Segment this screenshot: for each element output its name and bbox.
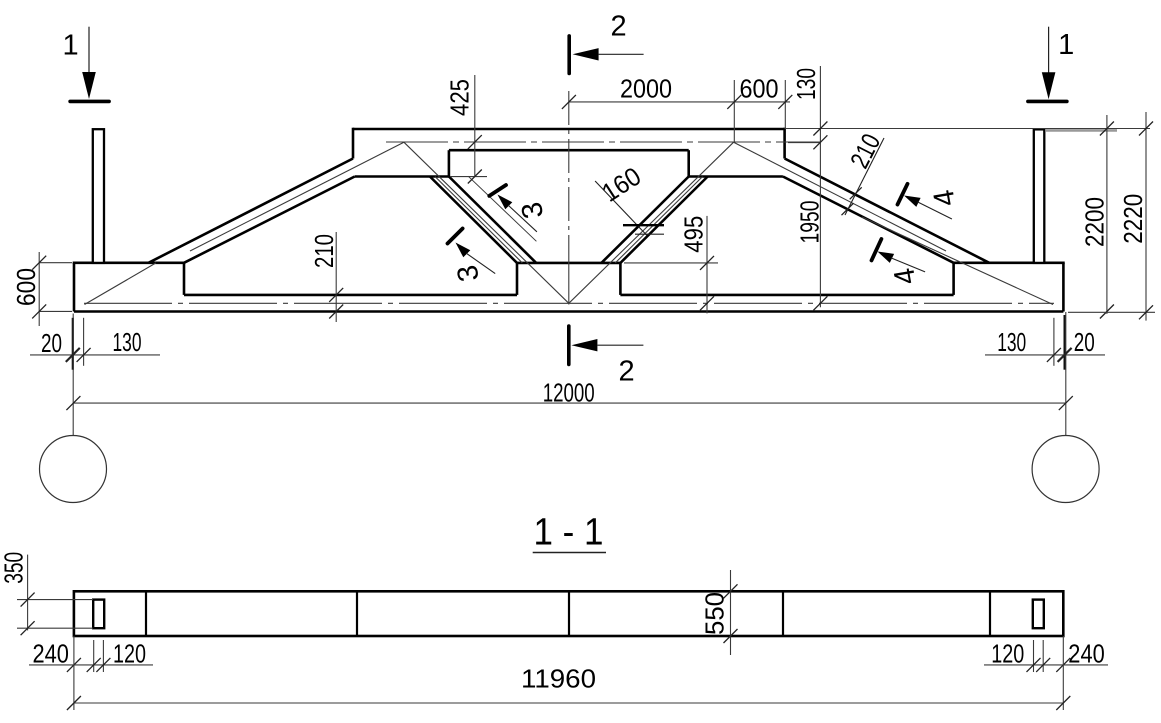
svg-text:550: 550	[699, 592, 729, 635]
svg-text:130: 130	[791, 68, 821, 100]
svg-text:2: 2	[618, 355, 634, 387]
svg-text:495: 495	[678, 216, 708, 253]
svg-text:600: 600	[11, 268, 41, 306]
svg-text:1: 1	[1058, 29, 1074, 61]
svg-text:12000: 12000	[543, 377, 595, 407]
svg-text:2000: 2000	[620, 73, 672, 103]
svg-text:120: 120	[991, 639, 1024, 669]
svg-text:2200: 2200	[1080, 197, 1110, 247]
svg-text:120: 120	[113, 639, 146, 669]
svg-text:2: 2	[610, 10, 626, 42]
svg-text:600: 600	[740, 73, 779, 103]
svg-text:20: 20	[1074, 327, 1095, 357]
svg-text:20: 20	[41, 328, 62, 358]
svg-text:350: 350	[0, 552, 28, 584]
svg-text:1: 1	[62, 29, 78, 61]
svg-text:130: 130	[997, 327, 1026, 357]
svg-text:1950: 1950	[795, 201, 825, 244]
svg-text:2220: 2220	[1118, 194, 1148, 244]
svg-text:425: 425	[444, 79, 474, 116]
svg-text:130: 130	[113, 327, 142, 357]
svg-text:240: 240	[1068, 639, 1104, 669]
svg-text:11960: 11960	[521, 663, 596, 693]
svg-text:210: 210	[309, 234, 339, 268]
svg-text:240: 240	[33, 639, 69, 669]
svg-text:1 - 1: 1 - 1	[534, 512, 604, 554]
